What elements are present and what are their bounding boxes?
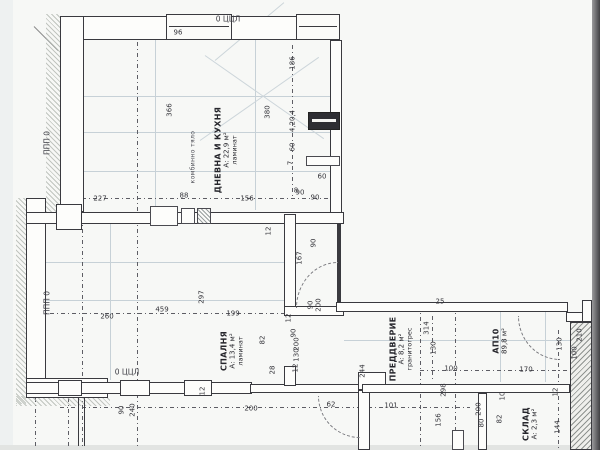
axis-label: ППП 0 [44,131,51,155]
dimension-label: 380 [265,105,272,118]
dimension-label: 244 [360,364,367,377]
dimension-label: 80 [479,419,486,428]
dimension-label: 82 [497,415,504,424]
dimension-label: 28 [270,366,277,375]
dimension-label: 90 [291,329,298,338]
dimension-label: 366 [167,103,174,116]
page-edge-bottom [0,445,600,450]
wall-line [78,398,79,446]
dimension-label: 7 [288,161,295,165]
note-label: комбинно тяло [190,131,197,184]
door-arc-entrance [318,396,360,438]
dimension-label: 60 [318,174,327,181]
dimension-label: 96 [174,30,183,37]
wall-left-upper [60,16,84,212]
axis-label: 0 ЦЦЛ [115,369,139,376]
room-label-storage: СКЛАД А: 2,3 м² [522,407,539,441]
axis-label: 0 ЦЦЛ [216,16,240,23]
dimension-label: 200 [316,298,323,311]
door-arc-ap10 [518,316,560,360]
dimension-label: 12 [266,227,273,236]
dimension-label: 62 [327,402,336,409]
dimension-label: 82 [260,336,267,345]
door-frame [452,430,464,450]
dimension-label: 144 [555,420,562,433]
room-area: А: 8,2 м² [398,317,406,382]
dimension-label: 4,20,4 [290,110,297,132]
kitchen-fixture [181,208,195,224]
page-edge-right [592,0,600,450]
wall-hatch [16,198,26,404]
dimension-line [420,370,570,371]
wall-niche [306,156,340,166]
dimension-label: 199 [226,311,239,318]
axis-label: ППП 0 [44,291,51,315]
dimension-label: 227 [93,196,106,203]
dimension-label: 90 [311,195,320,202]
room-label-ap10: АП10 89,8 м² [492,328,509,354]
dimension-label: 12 [553,388,560,397]
room-floor: гранитогрес [406,317,414,382]
wall-vestibule-south [362,384,570,393]
faint-line [110,224,111,380]
dimension-label: 200 [244,406,257,413]
wall-bedroom-right [284,214,296,314]
room-label-bedroom: СПАЛНЯ А: 13,4 м² ламинат [220,331,245,371]
room-label-vestibule: ПРЕДДВЕРИЕ А: 8,2 м² гранитогрес [389,317,414,382]
dimension-label: 12 [286,314,293,323]
dimension-label: 25 [436,299,445,306]
kitchen-fixture [197,208,211,224]
wall-hatch [46,14,60,212]
room-area: 89,8 м² [501,328,509,354]
dimension-label: 130 [557,337,564,350]
dimension-label: 156 [436,413,443,426]
room-floor: ламинат [231,107,239,193]
dimension-label: 100 [572,346,579,359]
room-name: СКЛАД [522,407,531,441]
wall-line [84,398,85,446]
axis-line [420,306,421,446]
dimension-label: 90 [119,406,126,415]
dimension-label: 186 [290,56,297,69]
dimension-label: 240 [130,403,137,416]
wall-notch [582,300,592,322]
dimension-label: 459 [155,307,168,314]
dimension-label: 298 [441,383,448,396]
room-area: А: 13,4 м² [229,331,237,371]
dimension-label: 170 [519,367,532,374]
dimension-label: 130 [294,348,301,361]
page-edge-left [0,0,13,450]
room-name: СПАЛНЯ [220,331,229,371]
column [58,380,82,396]
room-area: А: 2,3 м² [531,407,539,441]
dimension-label: 60 [290,143,297,152]
dimension-label: 200 [476,402,483,415]
dimension-label: 10 [500,392,507,401]
window [296,14,340,40]
axis-line [455,306,456,446]
wall-corridor-south [250,384,362,393]
room-floor: ламинат [237,331,245,371]
dimension-label: 90 [308,301,315,310]
wall-ap10-north [336,302,568,312]
dimension-label: 297 [199,290,206,303]
faint-line [155,40,156,210]
dimension-label: 101 [384,403,397,410]
room-name: ДНЕВНА И КУХНЯ [214,107,223,193]
dimension-label: 260 [100,314,113,321]
kitchen-sink [150,206,178,226]
floor-plan-canvas: ДНЕВНА И КУХНЯ А: 22,9 м² ламинат СПАЛНЯ… [0,0,600,450]
column [56,204,82,230]
room-name: ПРЕДДВЕРИЕ [389,317,398,382]
dimension-label: 12 [293,364,300,373]
dimension-label: 90 [311,239,318,248]
faint-line [60,96,330,97]
dimension-label: 314 [424,321,431,334]
room-area: А: 22,9 м² [223,107,231,193]
dimension-label: 8 [294,188,298,195]
dimension-label: 210 [577,328,584,341]
dimension-label: 88 [180,193,189,200]
column [120,380,150,396]
room-label-living: ДНЕВНА И КУХНЯ А: 22,9 м² ламинат [214,107,239,193]
dimension-label: 167 [297,251,304,264]
faint-line [255,40,256,210]
room-name: АП10 [492,328,501,354]
flue-box [308,112,340,130]
dimension-label: 100 [444,366,457,373]
dimension-label: 12 [200,387,207,396]
dimension-label: 130 [431,341,438,354]
dimension-label: 156 [240,196,253,203]
